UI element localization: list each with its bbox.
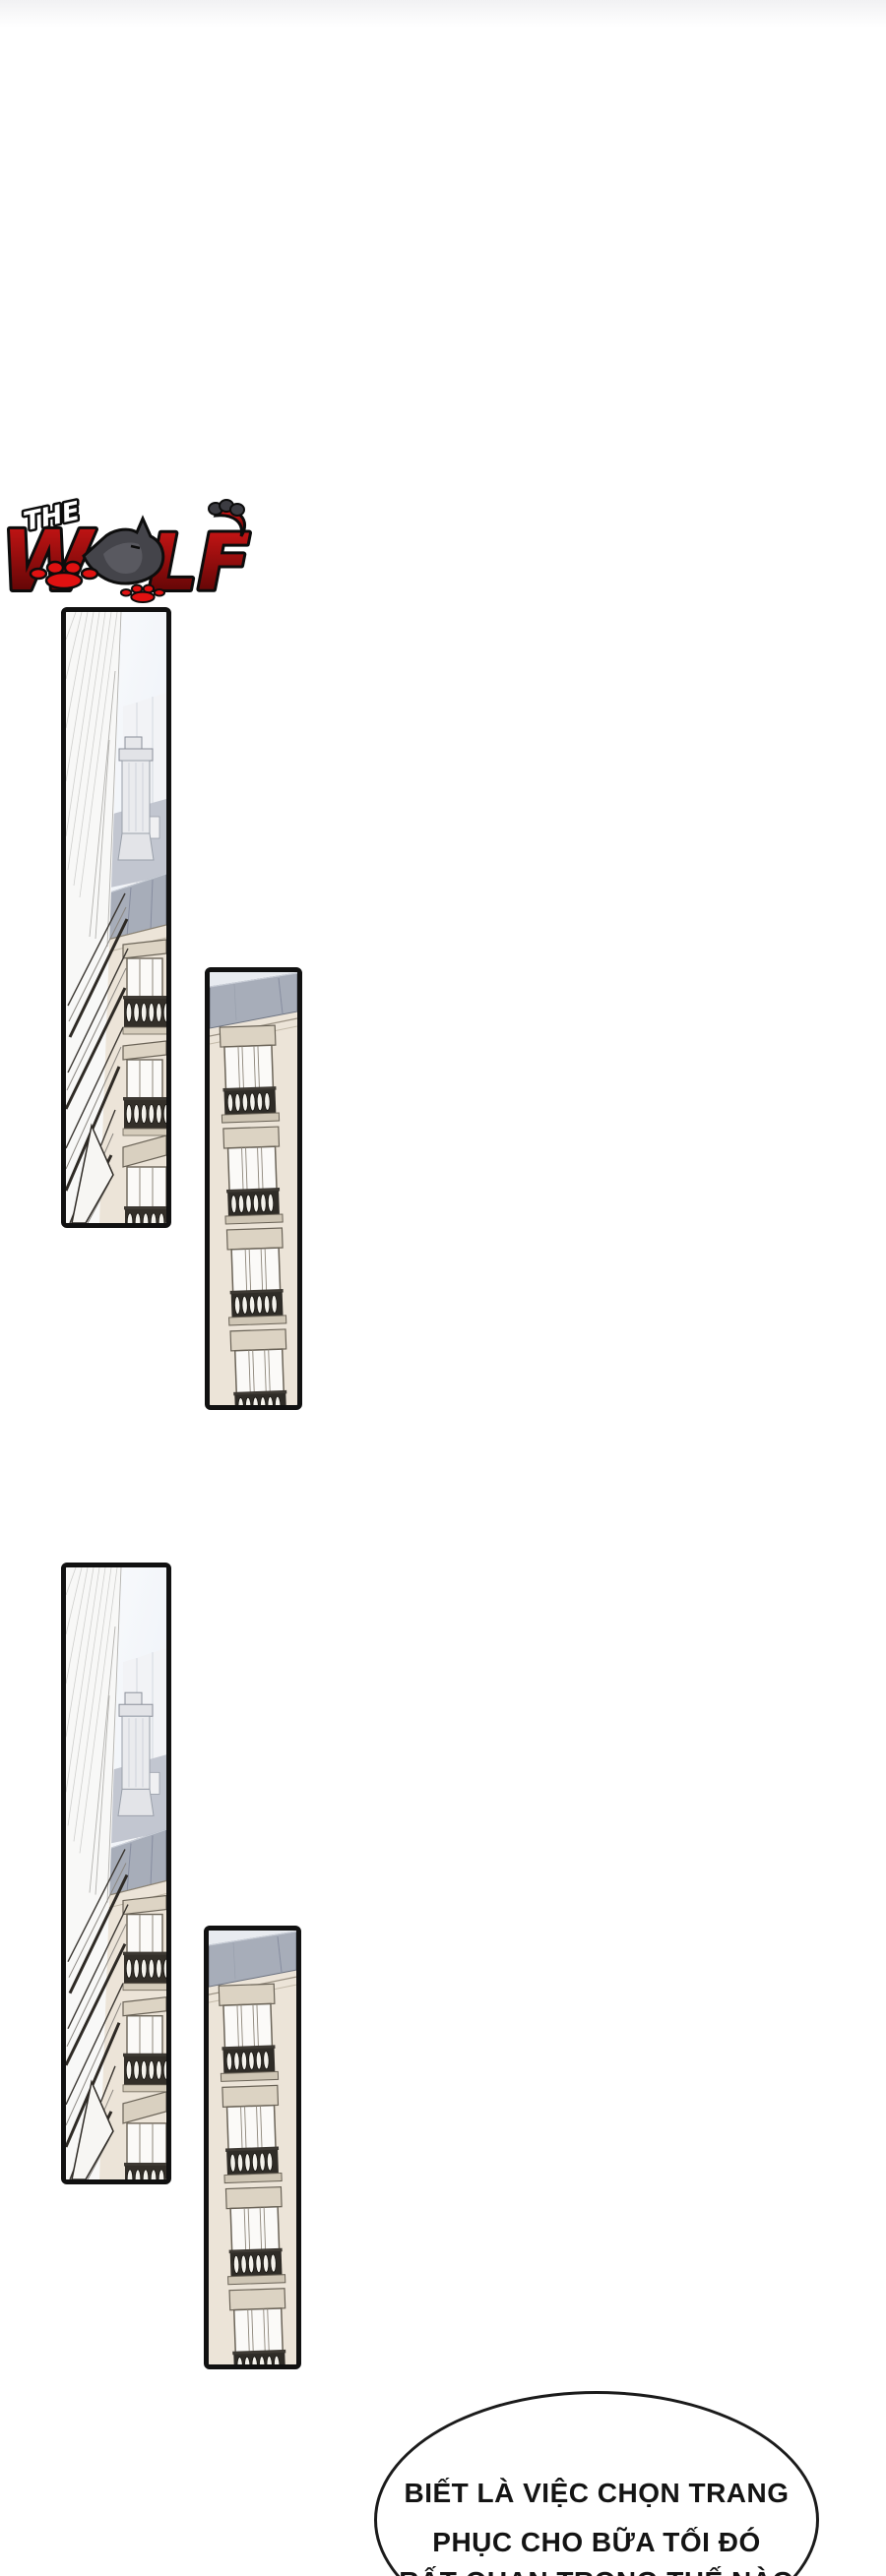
series-logo: W LF	[5, 495, 256, 613]
panel-3-artwork	[66, 1567, 166, 2179]
panel-1-artwork	[66, 612, 166, 1223]
comic-page: W LF	[0, 0, 886, 2576]
page-top-fade	[0, 0, 886, 28]
speech-line-3-cut-off: RẤT QUAN TRỌNG THẾ NÀO	[377, 2557, 816, 2576]
speech-line-1: BIẾT LÀ VIỆC CHỌN TRANG	[377, 2469, 816, 2518]
comic-panel-3	[61, 1563, 171, 2184]
panel-4-artwork	[209, 1931, 296, 2364]
speech-bubble: BIẾT LÀ VIỆC CHỌN TRANG PHỤC CHO BỮA TỐI…	[374, 2391, 819, 2576]
series-logo-artwork: W LF	[5, 495, 256, 613]
comic-panel-1	[61, 607, 171, 1228]
comic-panel-4	[204, 1926, 301, 2369]
speech-bubble-text: BIẾT LÀ VIỆC CHỌN TRANG PHỤC CHO BỮA TỐI…	[377, 2394, 816, 2576]
panel-2-artwork	[210, 972, 297, 1405]
comic-panel-2	[205, 967, 302, 1410]
